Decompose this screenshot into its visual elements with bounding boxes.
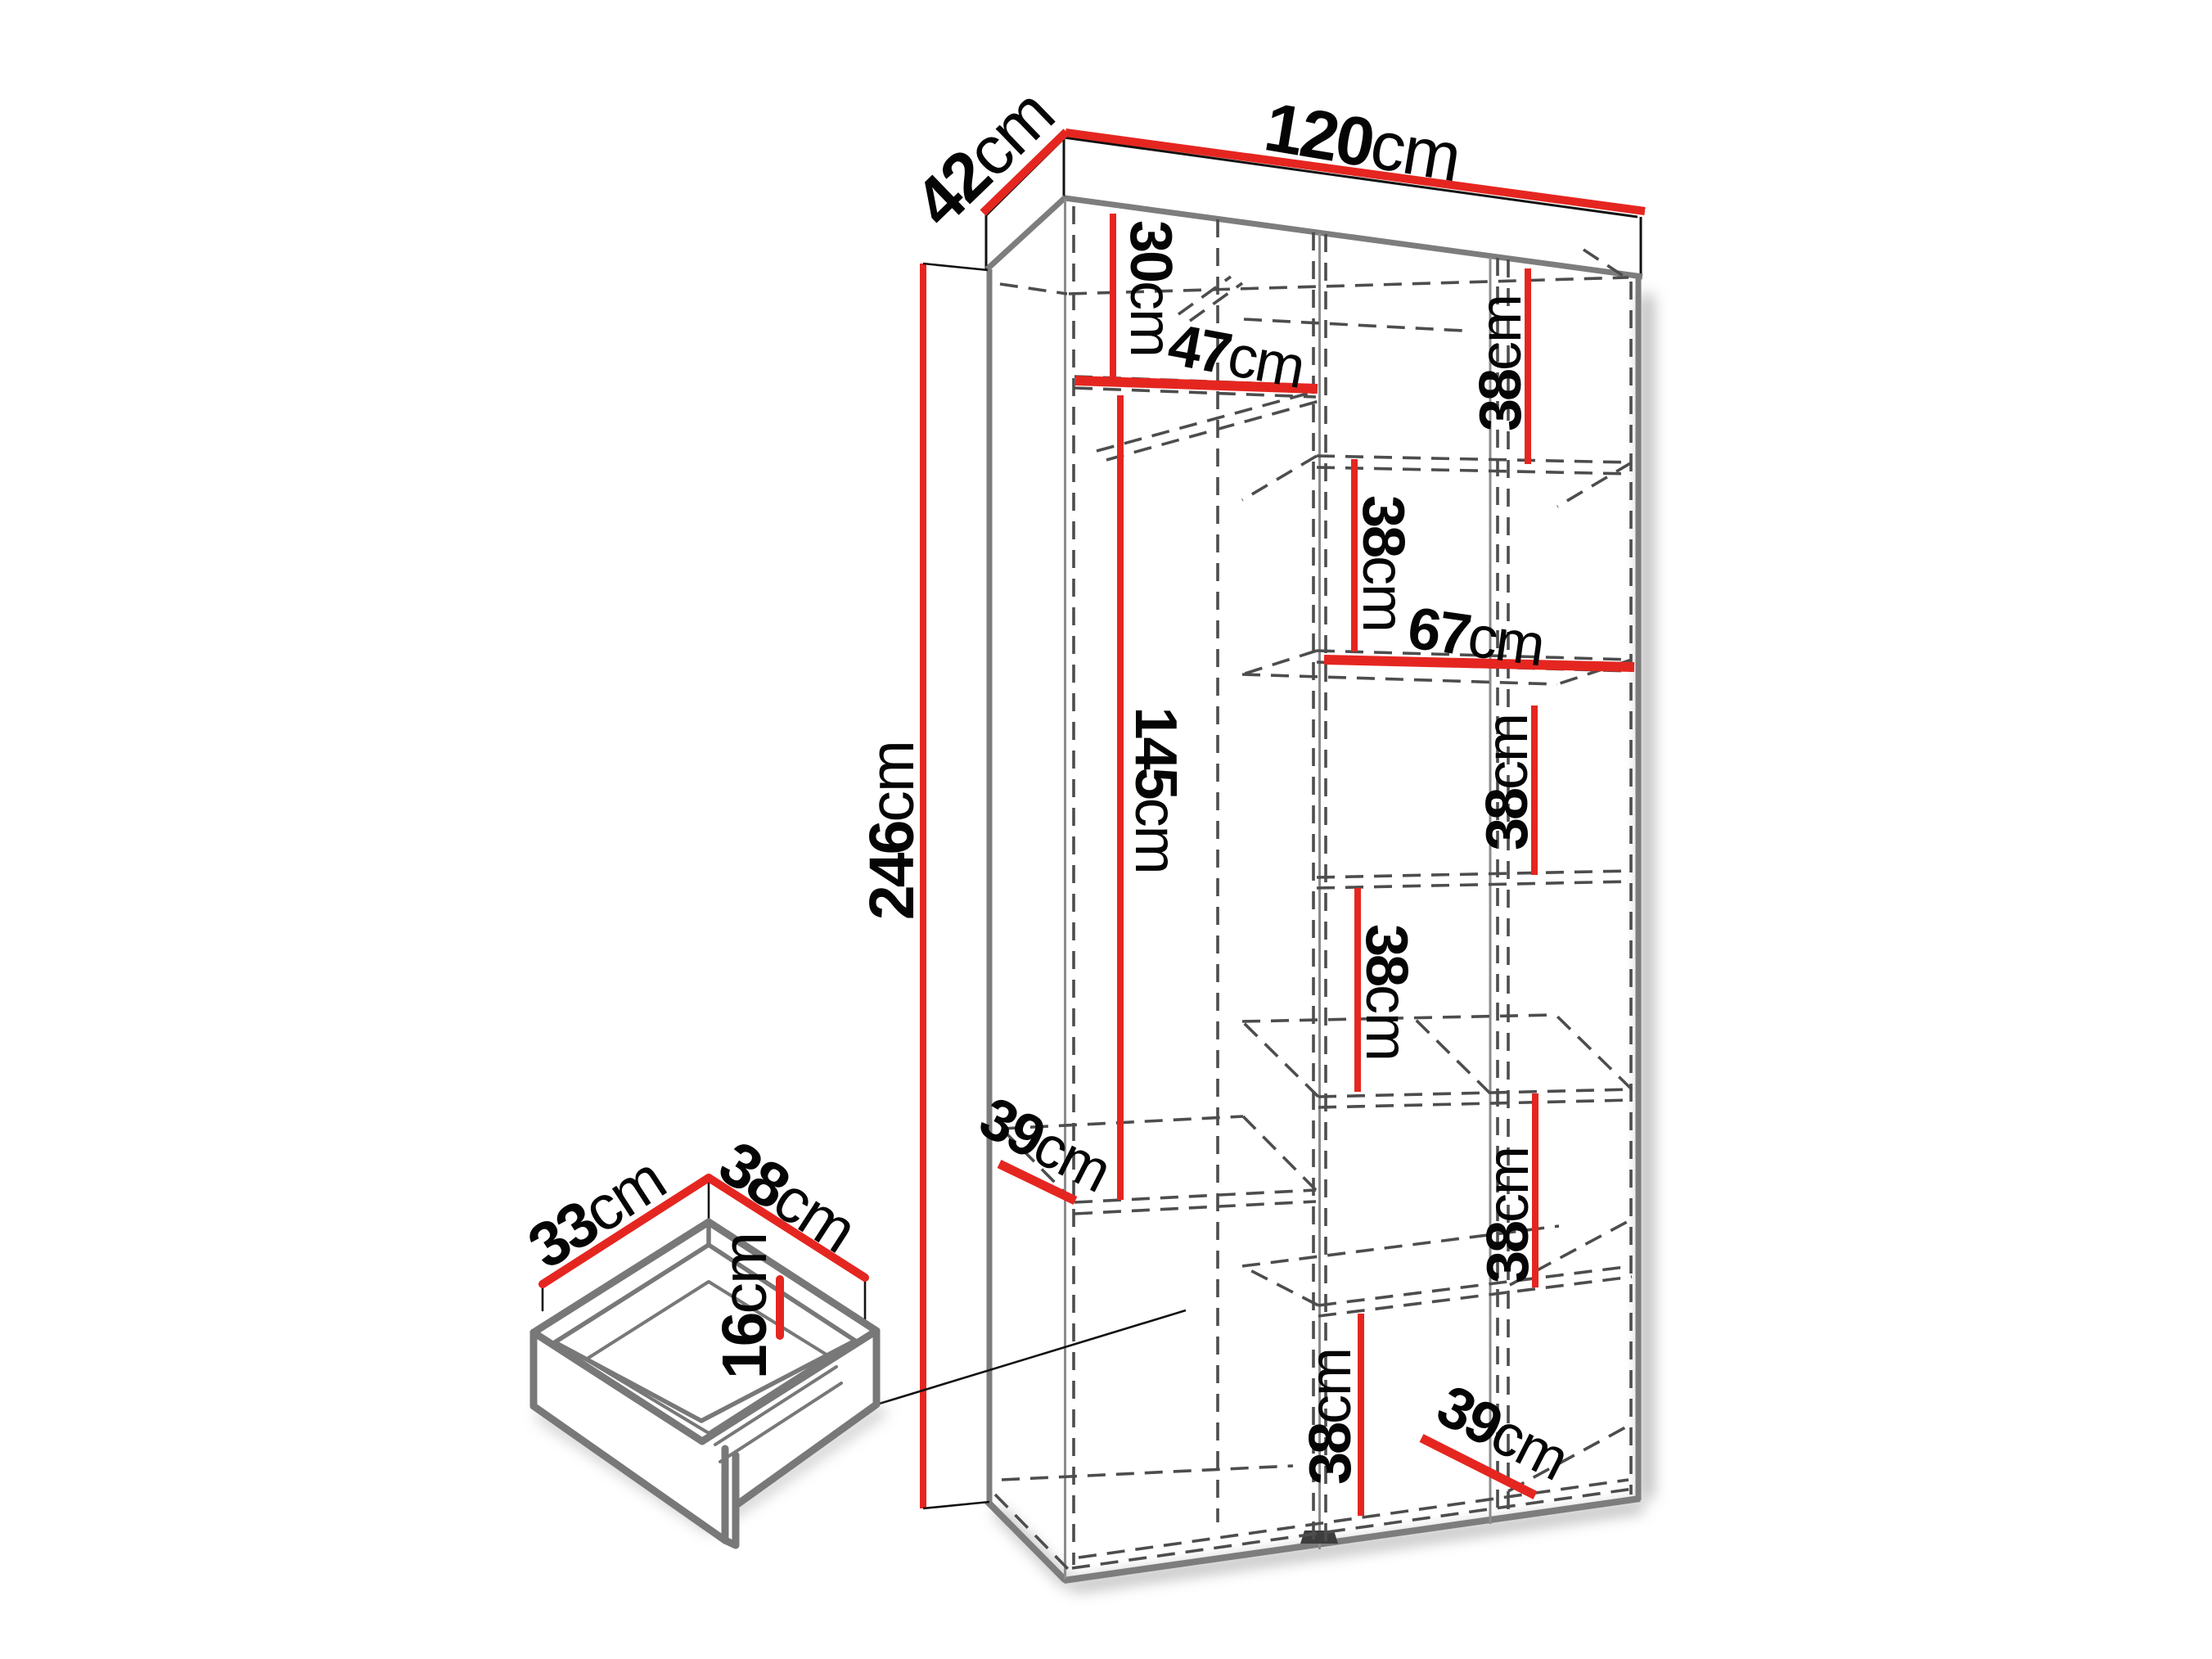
svg-text:16cm: 16cm <box>710 1233 780 1379</box>
svg-text:38cm: 38cm <box>1350 495 1416 631</box>
svg-text:38cm: 38cm <box>1354 924 1419 1060</box>
svg-text:38cm: 38cm <box>1298 1349 1363 1485</box>
svg-text:38cm: 38cm <box>1475 1147 1541 1283</box>
svg-text:145cm: 145cm <box>1123 706 1188 872</box>
svg-text:38cm: 38cm <box>1468 295 1534 431</box>
svg-text:38cm: 38cm <box>1475 715 1540 850</box>
svg-text:246cm: 246cm <box>857 742 927 920</box>
svg-text:120cm: 120cm <box>1259 88 1465 196</box>
